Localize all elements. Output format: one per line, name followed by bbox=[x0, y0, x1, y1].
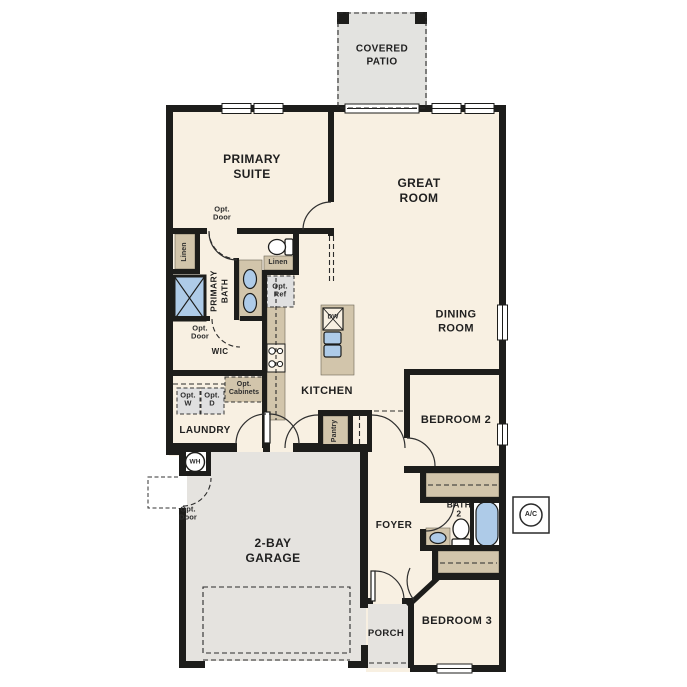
porch-label: PORCH bbox=[368, 628, 404, 640]
kitchen-label: KITCHEN bbox=[301, 385, 353, 399]
bathtub bbox=[470, 497, 503, 551]
floor-plan: COVERED PATIO PRIMARY SUITE GREAT ROOM D… bbox=[0, 0, 687, 687]
opt-door-landing-box bbox=[148, 477, 179, 508]
patio-post-left bbox=[337, 12, 349, 24]
opt-ref-label: Opt. Ref bbox=[272, 283, 287, 300]
island-sink bbox=[324, 332, 341, 357]
primary-bath-label: PRIMARY BATH bbox=[208, 270, 229, 312]
suite-opt-door-label: Opt. Door bbox=[213, 206, 231, 223]
great-room-label: GREAT ROOM bbox=[397, 176, 440, 206]
bedroom3-closet bbox=[438, 551, 499, 573]
opt-washer-label: Opt. W bbox=[180, 392, 195, 409]
foyer-label: FOYER bbox=[376, 520, 412, 533]
linen-2-label: Linen bbox=[268, 259, 287, 267]
ac-label: A/C bbox=[525, 511, 537, 519]
bath-2-label: BATH 2 bbox=[447, 501, 472, 520]
water-heater-label: WH bbox=[189, 458, 200, 465]
wic-opt-door-label: Opt. Door bbox=[191, 325, 209, 342]
primary-suite-label: PRIMARY SUITE bbox=[223, 152, 281, 182]
bedroom-3-label: BEDROOM 3 bbox=[422, 615, 492, 629]
garage-opt-door-gap bbox=[178, 476, 187, 508]
covered-patio-label: COVERED PATIO bbox=[356, 44, 408, 69]
wic-label: WIC bbox=[212, 347, 229, 357]
opt-dryer-label: Opt. D bbox=[204, 392, 219, 409]
shower bbox=[174, 276, 205, 320]
patio-post-right bbox=[415, 12, 427, 24]
opt-cabinets-label: Opt. Cabinets bbox=[229, 381, 259, 397]
dishwasher-label: DW bbox=[327, 313, 338, 320]
garage-opt-door-label: Opt. Door bbox=[179, 506, 197, 523]
floor-plan-drawing bbox=[0, 0, 687, 687]
pantry-label: Pantry bbox=[331, 420, 339, 442]
laundry-label: LAUNDRY bbox=[179, 425, 230, 438]
garage-label: 2-BAY GARAGE bbox=[245, 536, 300, 566]
dining-room-label: DINING ROOM bbox=[436, 308, 477, 336]
primary-toilet-icon bbox=[269, 239, 294, 255]
linen-1-label: Linen bbox=[181, 242, 189, 261]
bath2-toilet-icon bbox=[452, 519, 470, 548]
bedroom-2-label: BEDROOM 2 bbox=[421, 414, 491, 428]
